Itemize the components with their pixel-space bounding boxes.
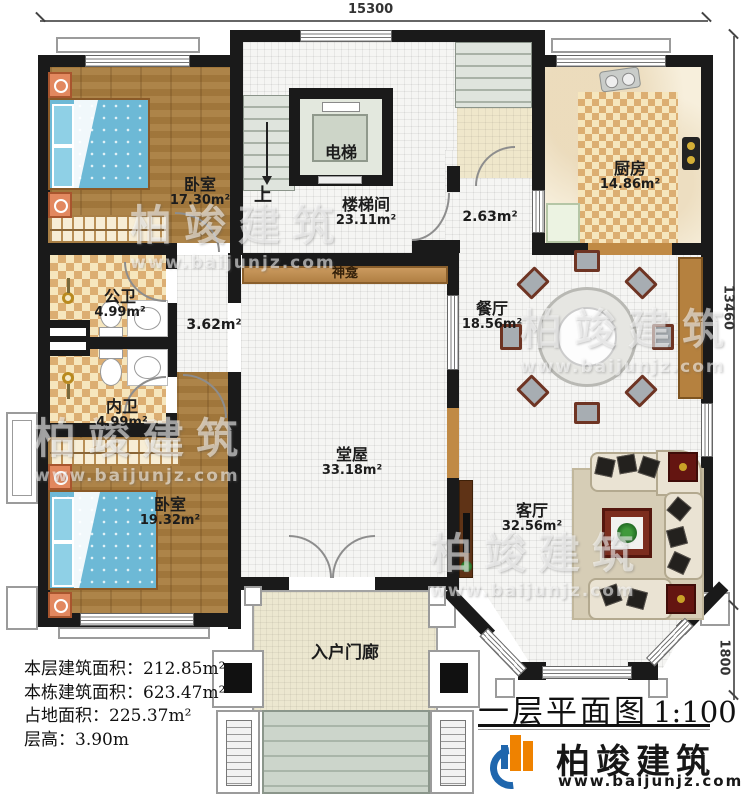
nightstand bbox=[48, 592, 72, 618]
wardrobe bbox=[48, 438, 180, 466]
wall bbox=[447, 478, 459, 577]
room-name: 厨房 bbox=[600, 160, 660, 178]
bedroom1-label: 卧室 17.30m² bbox=[170, 176, 230, 208]
direction-text: 上 bbox=[254, 186, 272, 206]
rosette bbox=[677, 595, 685, 603]
logo-building-bar bbox=[510, 735, 521, 771]
title-underline-thin bbox=[478, 729, 710, 730]
corridor-label: 3.62m² bbox=[186, 318, 241, 334]
porch-pilaster bbox=[244, 586, 262, 606]
dining-chair bbox=[574, 402, 600, 424]
side-box-trim bbox=[6, 586, 38, 630]
top-dimension-label: 15300 bbox=[348, 2, 393, 17]
wall bbox=[672, 243, 713, 255]
wall bbox=[447, 253, 459, 295]
stair-flight-top bbox=[455, 42, 532, 108]
floor-plan-page: 15300 13460 1800 bbox=[0, 0, 750, 804]
room-area: 4.99m² bbox=[96, 416, 147, 431]
room-area: 23.11m² bbox=[336, 214, 396, 229]
logo-building-bar bbox=[523, 741, 533, 771]
room-name: 电梯 bbox=[325, 144, 357, 162]
toilet-bowl bbox=[100, 358, 122, 386]
window bbox=[447, 295, 459, 370]
room-name: 卧室 bbox=[140, 496, 200, 514]
stove bbox=[682, 137, 700, 170]
louver-slot bbox=[50, 328, 86, 336]
stat-floor-height: 层高：3.90m bbox=[24, 729, 225, 753]
window bbox=[85, 55, 190, 67]
room-area: 17.30m² bbox=[170, 194, 230, 209]
window bbox=[300, 30, 392, 42]
stair-direction-arrow bbox=[266, 122, 268, 178]
shower-stem bbox=[67, 384, 70, 399]
stat-floor-area: 本层建筑面积：212.85m² bbox=[24, 658, 225, 682]
fridge bbox=[546, 203, 580, 243]
wall bbox=[447, 166, 460, 192]
bedroom2-label: 卧室 19.32m² bbox=[140, 496, 200, 528]
hall-floor bbox=[241, 284, 447, 577]
nightstand bbox=[48, 464, 72, 490]
room-name: 堂屋 bbox=[322, 446, 382, 464]
living-label: 客厅 32.56m² bbox=[502, 502, 562, 534]
wardrobe bbox=[48, 215, 168, 243]
room-area: 14.86m² bbox=[600, 178, 660, 193]
sofa-cushion bbox=[594, 456, 615, 477]
bed-pillow bbox=[52, 497, 74, 542]
stair-landing-label: 2.63m² bbox=[462, 210, 517, 226]
room-area: 2.63m² bbox=[462, 210, 517, 226]
room-name: 入户门廊 bbox=[311, 644, 379, 663]
room-area: 32.56m² bbox=[502, 520, 562, 535]
window-sill-trim bbox=[56, 37, 200, 53]
porch-label: 入户门廊 bbox=[311, 644, 379, 663]
nightstand bbox=[48, 192, 72, 218]
room-name: 餐厅 bbox=[462, 300, 522, 318]
logo-building-bar bbox=[501, 745, 508, 769]
shower-head bbox=[62, 372, 74, 384]
ac-platform-inner bbox=[12, 420, 32, 496]
window bbox=[556, 55, 666, 67]
bed-fold bbox=[74, 492, 100, 588]
side-steps-rungs bbox=[226, 720, 252, 786]
stats-block: 本层建筑面积：212.85m² 本栋建筑面积：623.47m² 占地面积：225… bbox=[24, 658, 225, 752]
kitchen-label: 厨房 14.86m² bbox=[600, 160, 660, 192]
brand-url: www.baijunjz.com bbox=[558, 772, 743, 790]
sink-bowl bbox=[621, 72, 636, 87]
stair-arrowhead bbox=[262, 176, 272, 185]
side-table bbox=[666, 584, 696, 614]
shower-head bbox=[62, 292, 74, 304]
rosette bbox=[679, 463, 687, 471]
room-area: 19.32m² bbox=[140, 514, 200, 529]
burner bbox=[687, 156, 695, 164]
sofa-cushion bbox=[617, 454, 638, 475]
window bbox=[701, 403, 713, 457]
wall bbox=[228, 253, 241, 303]
room-name: 卧室 bbox=[170, 176, 230, 194]
toilet-tank bbox=[99, 327, 123, 337]
window bbox=[80, 613, 194, 626]
hall-dining-threshold bbox=[447, 408, 459, 478]
porch-column bbox=[440, 663, 468, 693]
bay-window bbox=[542, 666, 632, 679]
hall-label: 堂屋 33.18m² bbox=[322, 446, 382, 478]
room-area: 33.18m² bbox=[322, 464, 382, 479]
bed-pillow bbox=[52, 146, 74, 188]
sink-bowl bbox=[604, 74, 619, 89]
bed-pillow bbox=[52, 104, 74, 146]
kitchen-threshold bbox=[588, 243, 672, 255]
room-name: 公卫 bbox=[94, 288, 145, 306]
dining-chair bbox=[574, 250, 600, 272]
burner bbox=[687, 142, 695, 150]
room-area: 3.62m² bbox=[186, 318, 241, 334]
brand-logo-mark bbox=[490, 733, 548, 795]
side-steps-rungs bbox=[440, 720, 466, 786]
stairwell-label: 楼梯间 23.11m² bbox=[336, 196, 396, 228]
kitchen-door-opening bbox=[532, 190, 545, 233]
sideboard bbox=[678, 257, 703, 399]
porch-column bbox=[224, 663, 252, 693]
sink-basin bbox=[134, 356, 161, 379]
louver-slot bbox=[50, 342, 86, 350]
wall bbox=[166, 255, 177, 269]
top-dimension-line bbox=[40, 20, 708, 22]
private-bath-label: 内卫 4.99m² bbox=[96, 398, 147, 430]
bed bbox=[48, 98, 150, 190]
room-area: 18.56m² bbox=[462, 318, 522, 333]
stat-footprint: 占地面积：225.37m² bbox=[24, 705, 225, 729]
public-bath-label: 公卫 4.99m² bbox=[94, 288, 145, 320]
wall bbox=[412, 240, 460, 253]
stair-up-label: 上 bbox=[254, 186, 272, 206]
bed-fold bbox=[74, 100, 98, 188]
dining-label: 餐厅 18.56m² bbox=[462, 300, 522, 332]
room-name: 客厅 bbox=[502, 502, 562, 520]
elevator-door-lines bbox=[318, 176, 362, 184]
wall bbox=[230, 30, 243, 255]
tv bbox=[463, 513, 470, 553]
dining-table-center bbox=[557, 307, 617, 367]
wall bbox=[228, 372, 241, 629]
bed-pillow bbox=[52, 542, 74, 587]
shower-stem bbox=[67, 278, 70, 293]
bottom-right-dimension-label: 1800 bbox=[717, 634, 732, 682]
entry-steps bbox=[262, 710, 430, 794]
room-name: 楼梯间 bbox=[336, 196, 396, 214]
elevator-label: 电梯 bbox=[325, 144, 357, 162]
room-area: 4.99m² bbox=[94, 306, 145, 321]
wall bbox=[447, 370, 459, 408]
plant bbox=[617, 523, 637, 543]
porch-pilaster bbox=[428, 586, 446, 606]
room-name: 内卫 bbox=[96, 398, 147, 416]
title-underline-thick bbox=[478, 724, 710, 727]
dining-chair bbox=[652, 324, 674, 350]
right-dimension-label: 13460 bbox=[721, 272, 736, 344]
wall bbox=[375, 577, 459, 590]
wall bbox=[242, 253, 448, 267]
coffee-table bbox=[602, 508, 652, 558]
tv-cabinet bbox=[459, 480, 473, 578]
side-table bbox=[668, 452, 698, 482]
corridor-floor bbox=[177, 255, 228, 372]
elevator-door-slot bbox=[322, 102, 360, 112]
louver-window bbox=[42, 320, 90, 356]
plant bbox=[461, 561, 472, 572]
window-sill-trim bbox=[551, 38, 671, 53]
wall bbox=[38, 243, 177, 255]
stat-total-area: 本栋建筑面积：623.47m² bbox=[24, 682, 225, 706]
window-sill-trim bbox=[58, 627, 210, 639]
room-name: 神龛 bbox=[332, 267, 358, 282]
right-dimension-line bbox=[733, 36, 735, 700]
nightstand bbox=[48, 72, 72, 98]
wall bbox=[701, 55, 713, 255]
shrine-label: 神龛 bbox=[332, 267, 358, 282]
